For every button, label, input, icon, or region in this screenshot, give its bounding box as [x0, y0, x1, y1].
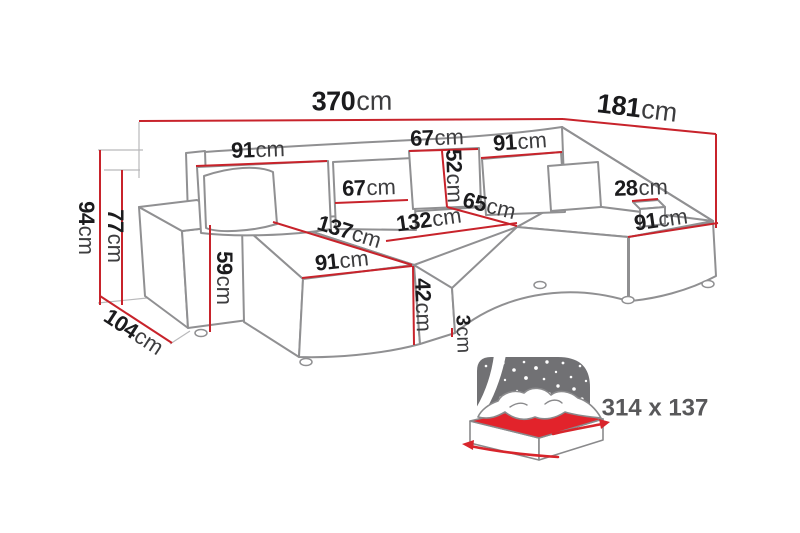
sofa-foot [622, 297, 634, 304]
dim-line-total-width [139, 119, 563, 121]
sofa-foot [702, 281, 714, 288]
dim-label-mid-back-cushion: 67cm [342, 174, 397, 201]
dim-label-right-armrest: 28cm [614, 174, 669, 201]
bed-size-label: 314 x 137 [602, 394, 709, 421]
dim-label-seat-height: 42cm [410, 278, 437, 333]
dim-label-total-width: 370cm [312, 86, 393, 117]
diagram-canvas: 370cm 181cm 91cm 67cm 91cm 52cm 67cm 28c… [0, 0, 800, 533]
dim-label-armrest-height: 59cm [212, 251, 237, 305]
dim-label-top-back-cushion: 67cm [410, 124, 465, 151]
dim-label-back-height: 77cm [103, 209, 128, 263]
sleeping-function-icon: 314 x 137 [458, 355, 708, 460]
middle-seat-front [452, 227, 628, 333]
throw-pillow-left [204, 168, 277, 231]
dim-label-side-depth: 104cm [100, 303, 169, 360]
sofa-foot [534, 282, 546, 289]
dim-label-total-height: 94cm [74, 201, 99, 255]
throw-pillow-right [548, 162, 601, 211]
sofa-foot [300, 359, 312, 366]
bed-length-arrowhead [462, 440, 474, 450]
dim-label-right-backrest: 91cm [492, 127, 547, 156]
left-chaise-front [299, 265, 420, 357]
sofa-dimension-diagram: 370cm 181cm 91cm 67cm 91cm 52cm 67cm 28c… [0, 0, 800, 533]
sofa-foot [195, 330, 207, 337]
dim-label-left-backrest: 91cm [231, 136, 286, 163]
dim-label-total-depth: 181cm [595, 88, 679, 128]
dim-label-base-clearance: 3cm [451, 314, 474, 353]
